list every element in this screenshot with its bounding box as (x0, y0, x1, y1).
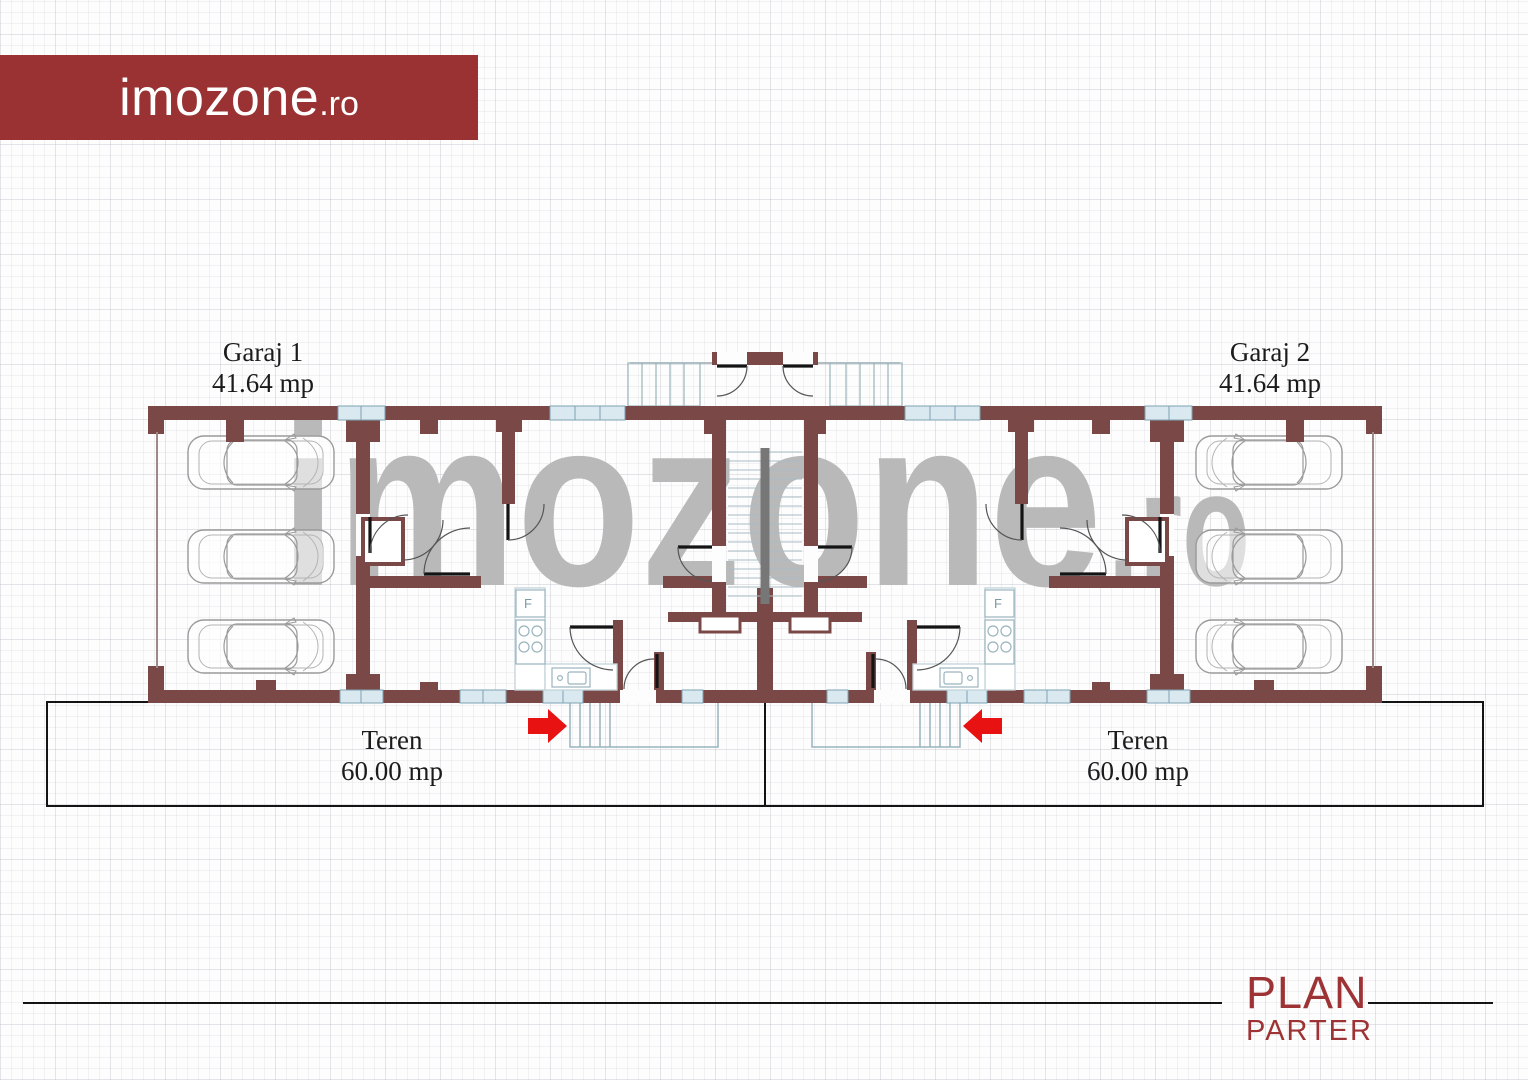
footer-rule-right (1368, 1002, 1493, 1004)
arrow-left-entrance (528, 709, 567, 743)
garage1-label: Garaj 1 41.64 mp (153, 337, 373, 399)
plan-title: PLAN (1246, 970, 1373, 1016)
land-plots (47, 702, 1483, 806)
plan-subtitle: PARTER (1246, 1016, 1373, 1046)
footer-rule-left (23, 1002, 1222, 1004)
garage2-label: Garaj 2 41.64 mp (1160, 337, 1380, 399)
garage2-area: 41.64 mp (1160, 368, 1380, 399)
land-left-label: Teren 60.00 mp (282, 725, 502, 787)
land-right-name: Teren (1028, 725, 1248, 756)
fridge-label-right: F (994, 596, 1002, 611)
land-right-area: 60.00 mp (1028, 756, 1248, 787)
land-right-label: Teren 60.00 mp (1028, 725, 1248, 787)
floor-plan: imozone .ro (0, 0, 1528, 1080)
land-left-name: Teren (282, 725, 502, 756)
plan-title-block: PLAN PARTER (1246, 970, 1373, 1046)
garage1-area: 41.64 mp (153, 368, 373, 399)
garage2-name: Garaj 2 (1160, 337, 1380, 368)
page: imozone.ro imozone .ro (0, 0, 1528, 1080)
garage1-name: Garaj 1 (153, 337, 373, 368)
arrow-right-entrance (963, 709, 1002, 743)
land-left-area: 60.00 mp (282, 756, 502, 787)
fridge-label-left: F (524, 596, 532, 611)
